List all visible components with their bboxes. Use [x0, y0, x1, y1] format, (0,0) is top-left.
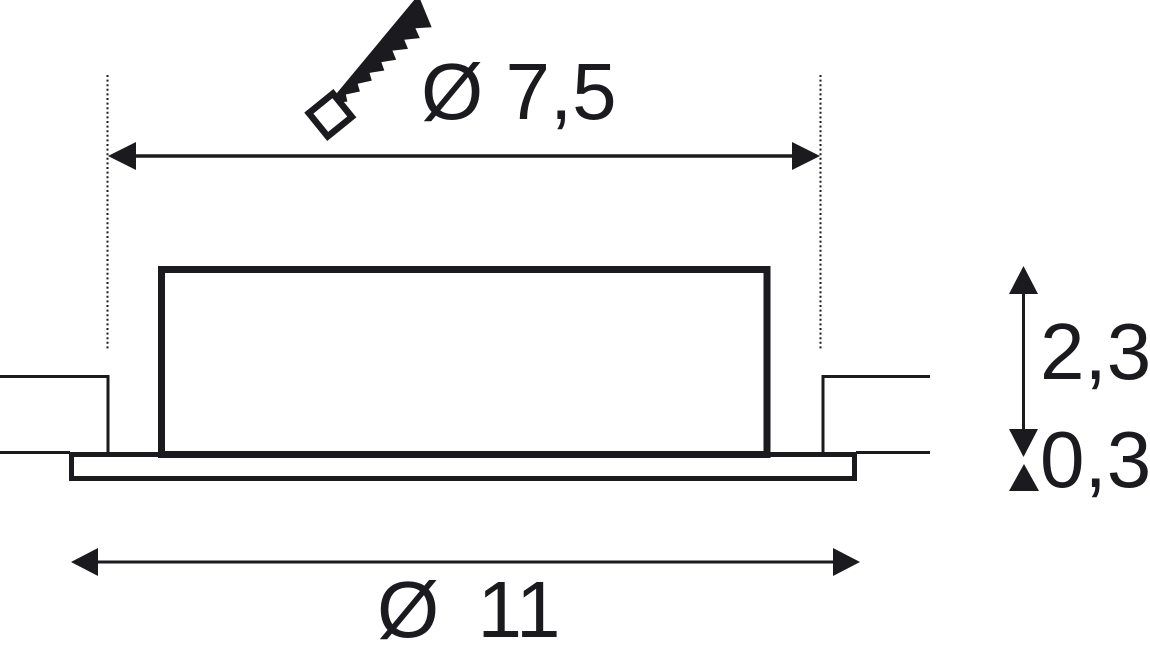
housing-height-label: 2,3	[1040, 312, 1150, 392]
outer-diameter-label: Ø 11	[377, 570, 561, 646]
arrowhead-down-icon	[1009, 429, 1038, 457]
flange-thickness-label: 0,3	[1040, 420, 1150, 500]
arrowhead-right-icon	[792, 142, 820, 170]
arrowhead-left-icon	[108, 142, 136, 170]
flange-outline	[72, 455, 855, 479]
ceiling-right	[822, 375, 930, 453]
housing-outline	[162, 270, 768, 455]
arrowhead-up-icon	[1009, 266, 1038, 294]
cutout-diameter-label: Ø 7,5	[421, 52, 617, 132]
height-dimension-line	[1009, 266, 1038, 457]
ceiling-left	[0, 375, 108, 453]
flange-thickness-arrow-icon	[1009, 464, 1039, 491]
arrowhead-right-icon	[833, 548, 860, 576]
cutout-dimension-line	[108, 142, 820, 170]
arrowhead-left-icon	[71, 548, 98, 576]
dimension-drawing: Ø 7,5 2,3 0,3 Ø 11	[0, 0, 1150, 646]
